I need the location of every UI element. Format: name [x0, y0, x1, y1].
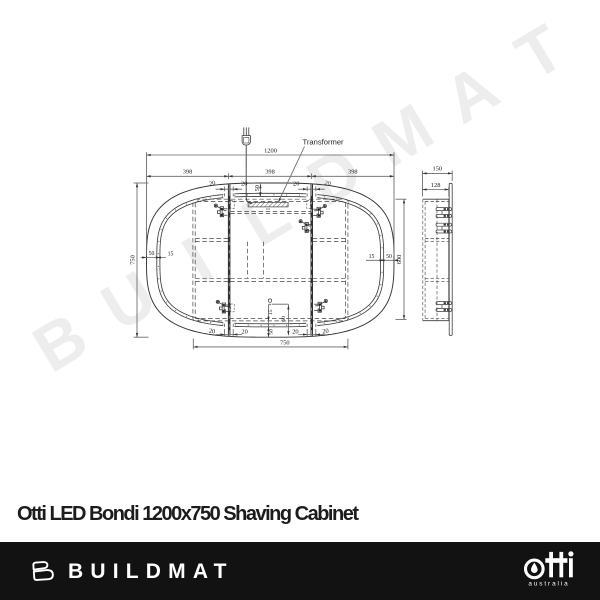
- svg-text:398: 398: [265, 168, 275, 175]
- svg-text:400: 400: [266, 207, 271, 211]
- svg-text:50: 50: [268, 329, 274, 335]
- svg-text:750: 750: [129, 255, 136, 265]
- svg-text:20: 20: [322, 328, 329, 336]
- svg-text:50: 50: [254, 185, 261, 191]
- svg-text:15: 15: [168, 251, 174, 257]
- svg-text:128: 128: [431, 182, 441, 189]
- svg-text:15: 15: [369, 254, 375, 260]
- svg-text:50: 50: [386, 254, 392, 260]
- svg-text:I: I: [170, 223, 224, 296]
- svg-text:U: U: [89, 257, 168, 345]
- svg-text:750: 750: [280, 339, 290, 346]
- svg-text:A: A: [432, 49, 511, 137]
- svg-text:398: 398: [183, 168, 193, 175]
- svg-text:50: 50: [149, 251, 155, 257]
- svg-text:20: 20: [241, 329, 247, 336]
- svg-text:398: 398: [348, 168, 358, 175]
- svg-text:20: 20: [208, 180, 216, 188]
- svg-text:australia: australia: [528, 581, 569, 588]
- svg-text:20: 20: [293, 181, 299, 188]
- svg-text:600: 600: [396, 255, 403, 265]
- svg-text:20: 20: [208, 328, 215, 336]
- svg-text:Transformer: Transformer: [303, 138, 345, 147]
- svg-text:20: 20: [292, 329, 298, 336]
- svg-text:20: 20: [241, 181, 247, 188]
- svg-text:T: T: [503, 10, 576, 94]
- svg-text:L: L: [229, 176, 302, 260]
- svg-text:60: 60: [281, 316, 287, 322]
- svg-text:B: B: [21, 298, 100, 386]
- svg-text:150: 150: [433, 166, 443, 173]
- svg-text:15: 15: [268, 309, 274, 315]
- svg-text:1200: 1200: [264, 148, 277, 155]
